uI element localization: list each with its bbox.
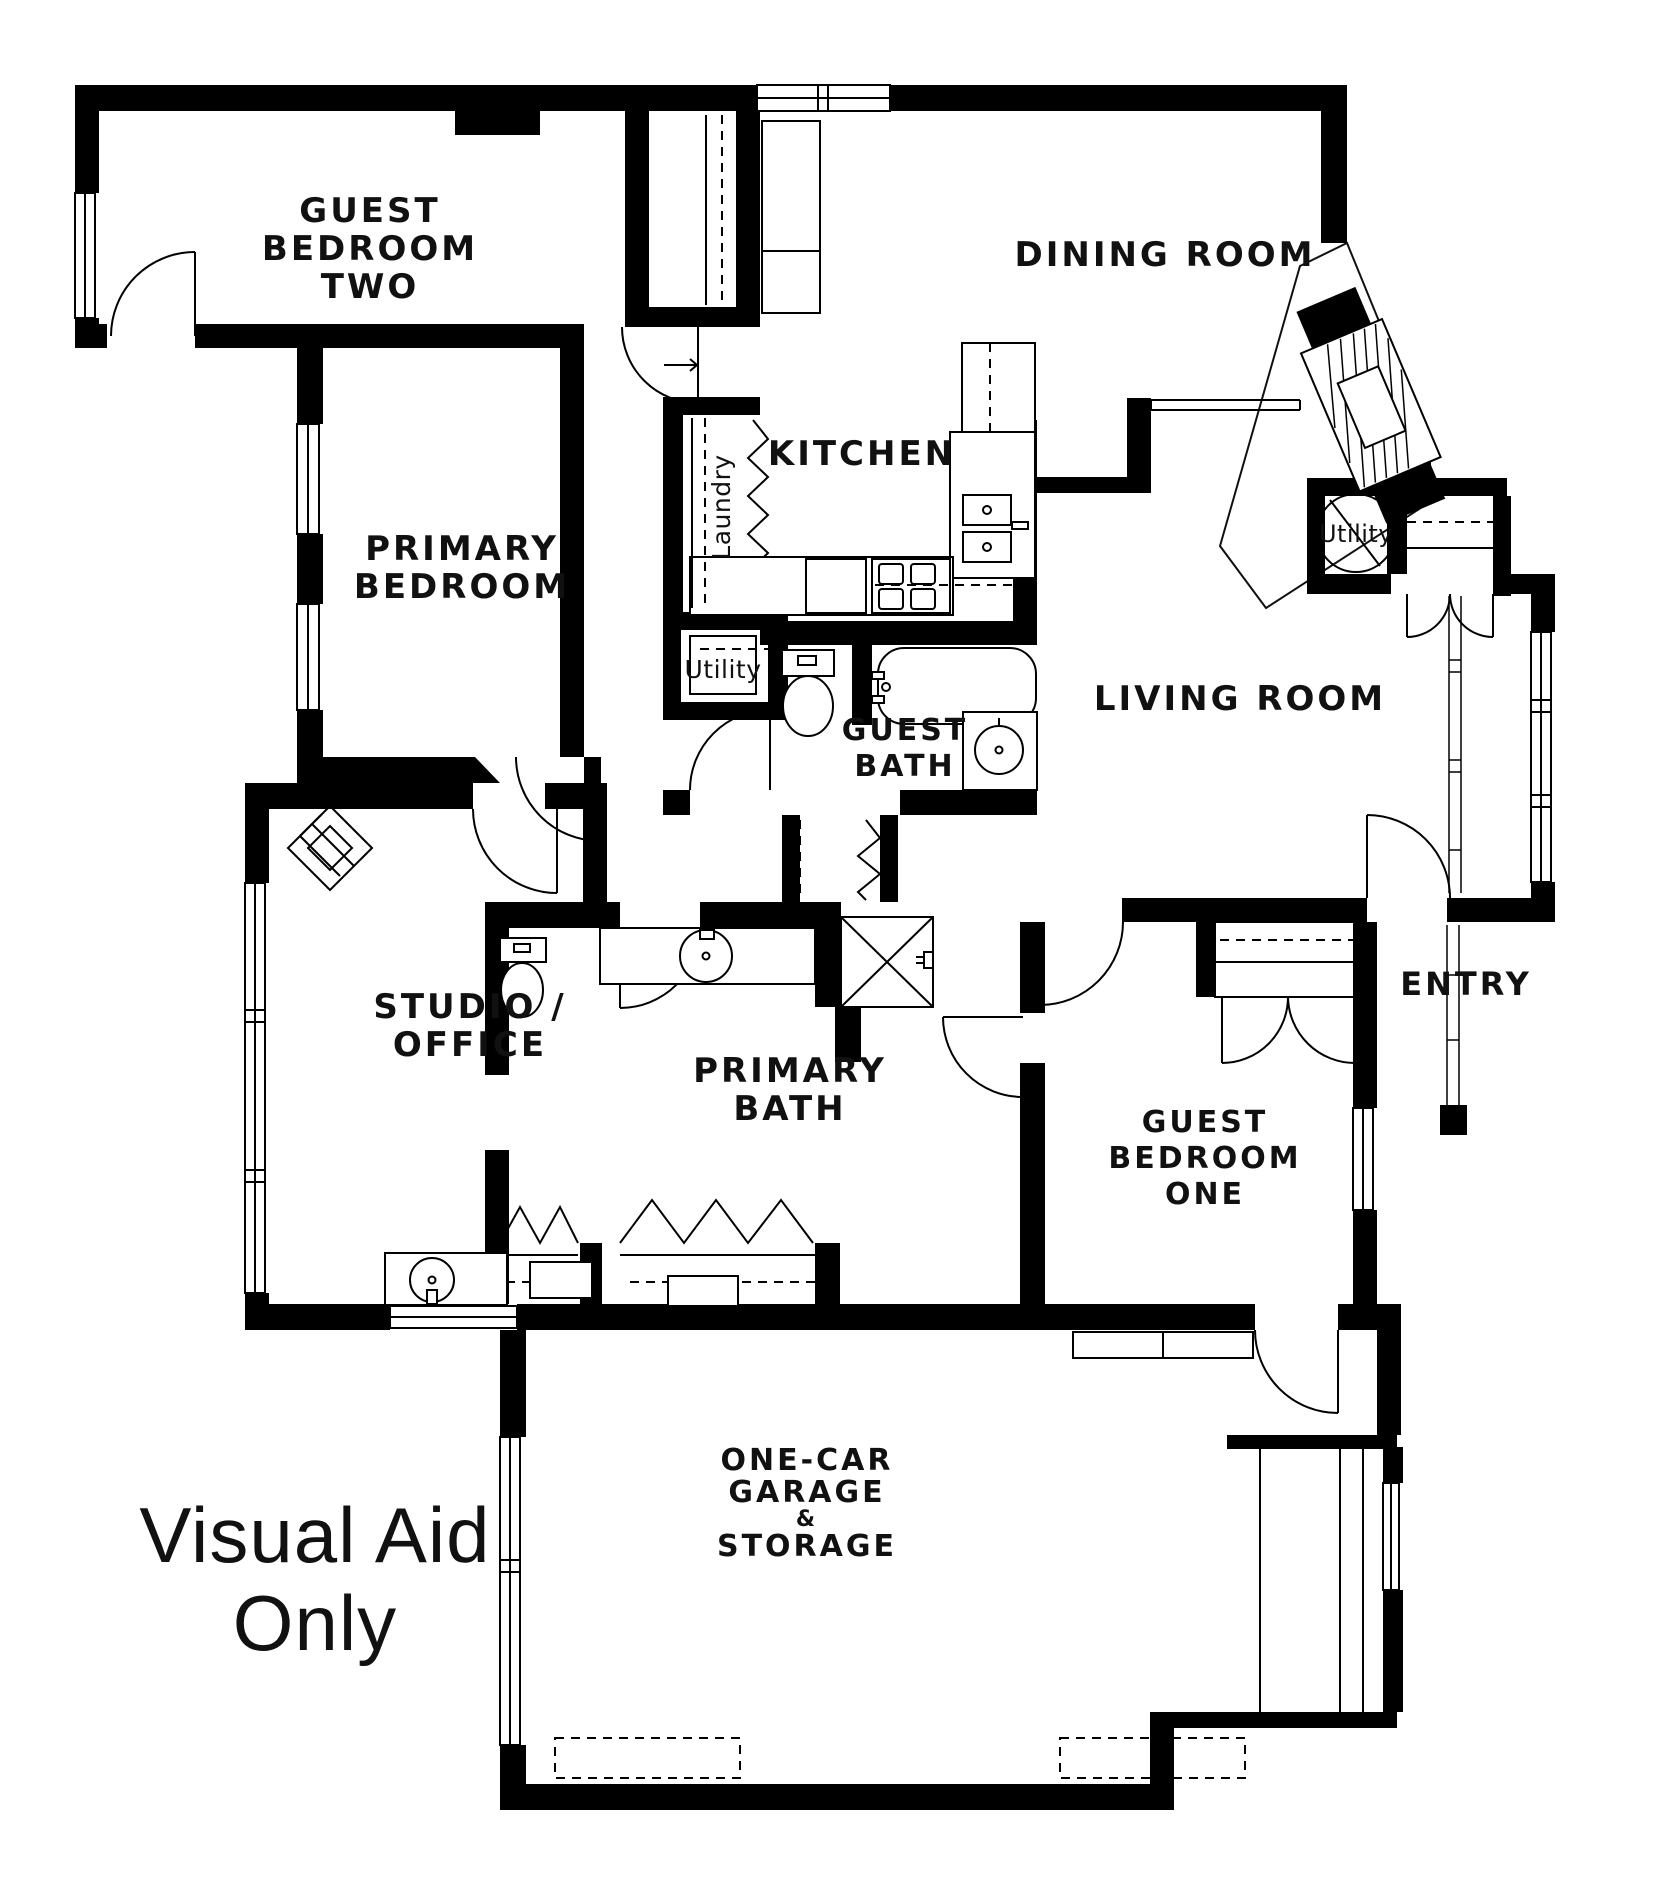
cabinet <box>762 251 820 313</box>
label-primary-bath: PRIMARY <box>693 1051 887 1091</box>
label-primary-bedroom-2: BEDROOM <box>354 567 570 607</box>
window-garage-slider <box>500 1437 520 1745</box>
window-primary-bedroom-upper <box>297 424 319 534</box>
label-studio-office: STUDIO / <box>373 987 566 1027</box>
fridge <box>762 121 820 251</box>
label-guest-bedroom-two-3: TWO <box>321 267 420 307</box>
floor-plan-svg: GUEST BEDROOM TWO DINING ROOM KITCHEN La… <box>0 0 1664 1892</box>
window-living-room <box>1531 632 1551 882</box>
window-studio <box>245 883 265 1293</box>
watermark-line-2: Only <box>233 1579 397 1667</box>
label-utility-hall: Utility <box>684 655 761 684</box>
label-dining-room: DINING ROOM <box>1015 235 1316 275</box>
kitchen-sink <box>950 432 1035 578</box>
window-primary-bedroom-lower <box>297 604 319 710</box>
window-storage-nook <box>1383 1483 1399 1590</box>
kitchen-tall-cabinet <box>962 343 1035 433</box>
label-guest-bath: GUEST <box>842 713 969 748</box>
label-guest-bedroom-one-3: ONE <box>1165 1177 1245 1212</box>
label-guest-bedroom-one: GUEST <box>1142 1105 1269 1140</box>
window-studio-bottom <box>390 1306 517 1328</box>
watermark-line-1: Visual Aid <box>139 1491 490 1579</box>
label-living-room: LIVING ROOM <box>1094 679 1386 719</box>
label-studio-office-2: OFFICE <box>393 1025 547 1065</box>
label-laundry: Laundry <box>707 454 736 559</box>
label-primary-bedroom: PRIMARY <box>365 529 559 569</box>
studio-sink <box>385 1253 507 1305</box>
window-kitchen-top <box>757 85 890 111</box>
label-entry: ENTRY <box>1400 965 1532 1003</box>
label-kitchen: KITCHEN <box>768 434 956 474</box>
window-guest-bedroom-two <box>75 193 95 318</box>
floor-plan-page: GUEST BEDROOM TWO DINING ROOM KITCHEN La… <box>0 0 1664 1892</box>
label-guest-bedroom-two-2: BEDROOM <box>262 229 478 269</box>
label-guest-bath-2: BATH <box>854 749 955 784</box>
label-garage-2: GARAGE <box>728 1475 885 1510</box>
label-garage: ONE-CAR <box>721 1443 894 1478</box>
label-guest-bedroom-one-2: BEDROOM <box>1108 1141 1301 1176</box>
window-guest-bedroom-one <box>1353 1108 1373 1210</box>
label-garage-4: STORAGE <box>717 1529 897 1564</box>
label-utility-water-heater: Utility <box>1319 520 1393 548</box>
label-primary-bath-2: BATH <box>733 1089 846 1129</box>
label-guest-bedroom-two: GUEST <box>299 191 440 231</box>
